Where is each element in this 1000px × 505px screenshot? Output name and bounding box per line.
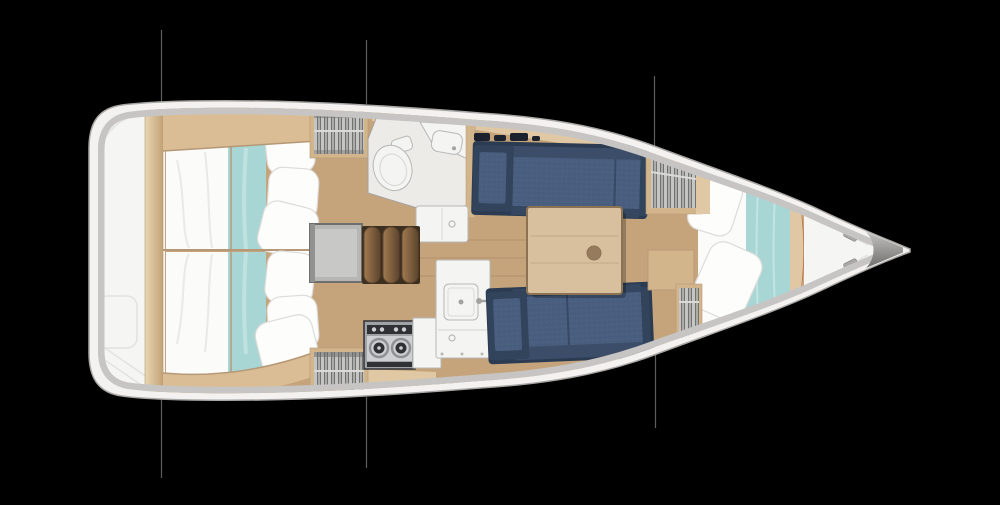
step <box>364 227 380 283</box>
saloon-table <box>527 207 626 298</box>
yacht-floor-plan-canvas <box>0 0 1000 505</box>
bulkhead-post <box>145 102 163 400</box>
step <box>402 227 418 283</box>
yacht-floor-plan <box>0 0 1000 505</box>
companionway-steps <box>362 226 420 284</box>
icebox <box>416 206 468 242</box>
aft-cabin-upper <box>163 104 321 262</box>
bed-duvet <box>166 252 228 378</box>
table-knob <box>587 246 601 260</box>
sink-unit <box>436 260 493 358</box>
aft-cabin-lower <box>163 250 322 397</box>
companionway <box>310 224 420 284</box>
interior <box>85 96 915 408</box>
stove <box>364 321 415 369</box>
head-compartment <box>367 116 470 211</box>
settee-armrest <box>487 291 530 361</box>
step <box>383 227 399 283</box>
berth-trim <box>790 200 803 301</box>
table-top <box>527 207 622 294</box>
settee-armrest <box>472 145 514 212</box>
bed-duvet <box>166 141 228 250</box>
